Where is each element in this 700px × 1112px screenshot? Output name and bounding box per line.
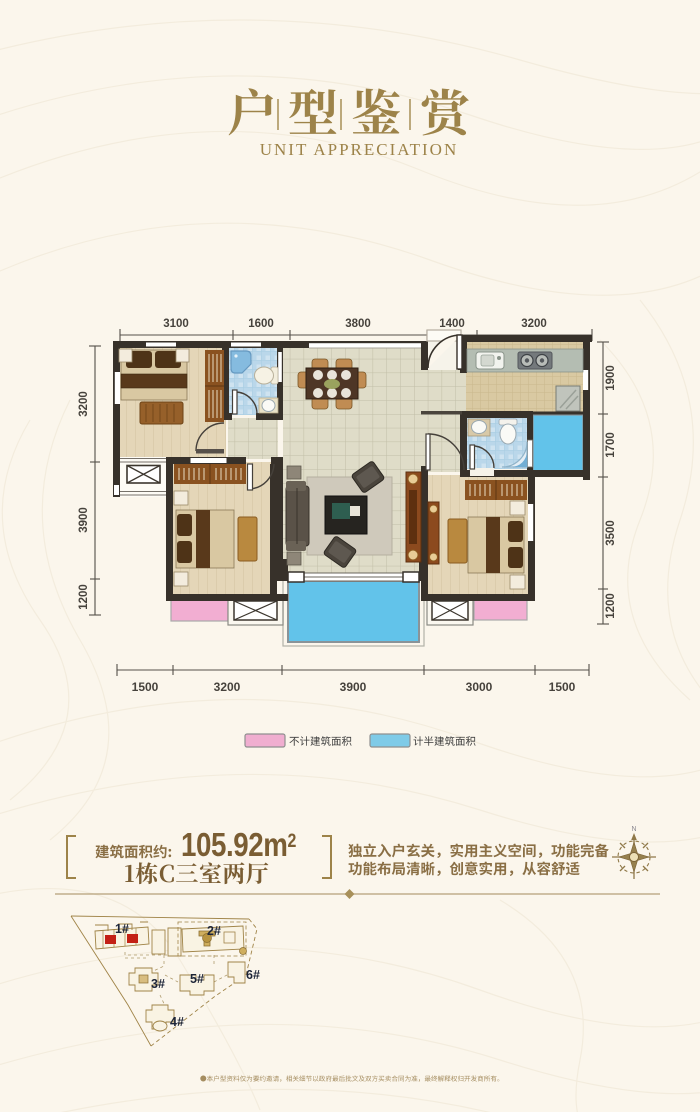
svg-text:3200: 3200 [521, 318, 547, 330]
svg-text:6#: 6# [246, 968, 260, 982]
svg-text:1#: 1# [115, 922, 129, 936]
svg-text:1500: 1500 [549, 680, 576, 694]
svg-text:3200: 3200 [78, 391, 90, 417]
svg-text:1700: 1700 [605, 432, 617, 458]
svg-text:2#: 2# [207, 924, 221, 938]
svg-text:3200: 3200 [214, 680, 241, 694]
svg-text:3000: 3000 [466, 680, 493, 694]
svg-text:N: N [631, 826, 636, 833]
svg-text:3900: 3900 [78, 507, 90, 533]
svg-text:3500: 3500 [605, 520, 617, 546]
svg-text:1900: 1900 [605, 365, 617, 391]
svg-text:4#: 4# [170, 1015, 184, 1029]
svg-text:5#: 5# [190, 972, 204, 986]
svg-text:3800: 3800 [345, 318, 371, 330]
svg-text:1200: 1200 [78, 584, 90, 610]
svg-text:3900: 3900 [340, 680, 367, 694]
svg-text:1500: 1500 [132, 680, 159, 694]
svg-text:1400: 1400 [439, 318, 465, 330]
svg-text:1600: 1600 [248, 318, 274, 330]
svg-text:1200: 1200 [605, 593, 617, 619]
svg-text:3#: 3# [151, 977, 165, 991]
svg-text:3100: 3100 [163, 318, 189, 330]
